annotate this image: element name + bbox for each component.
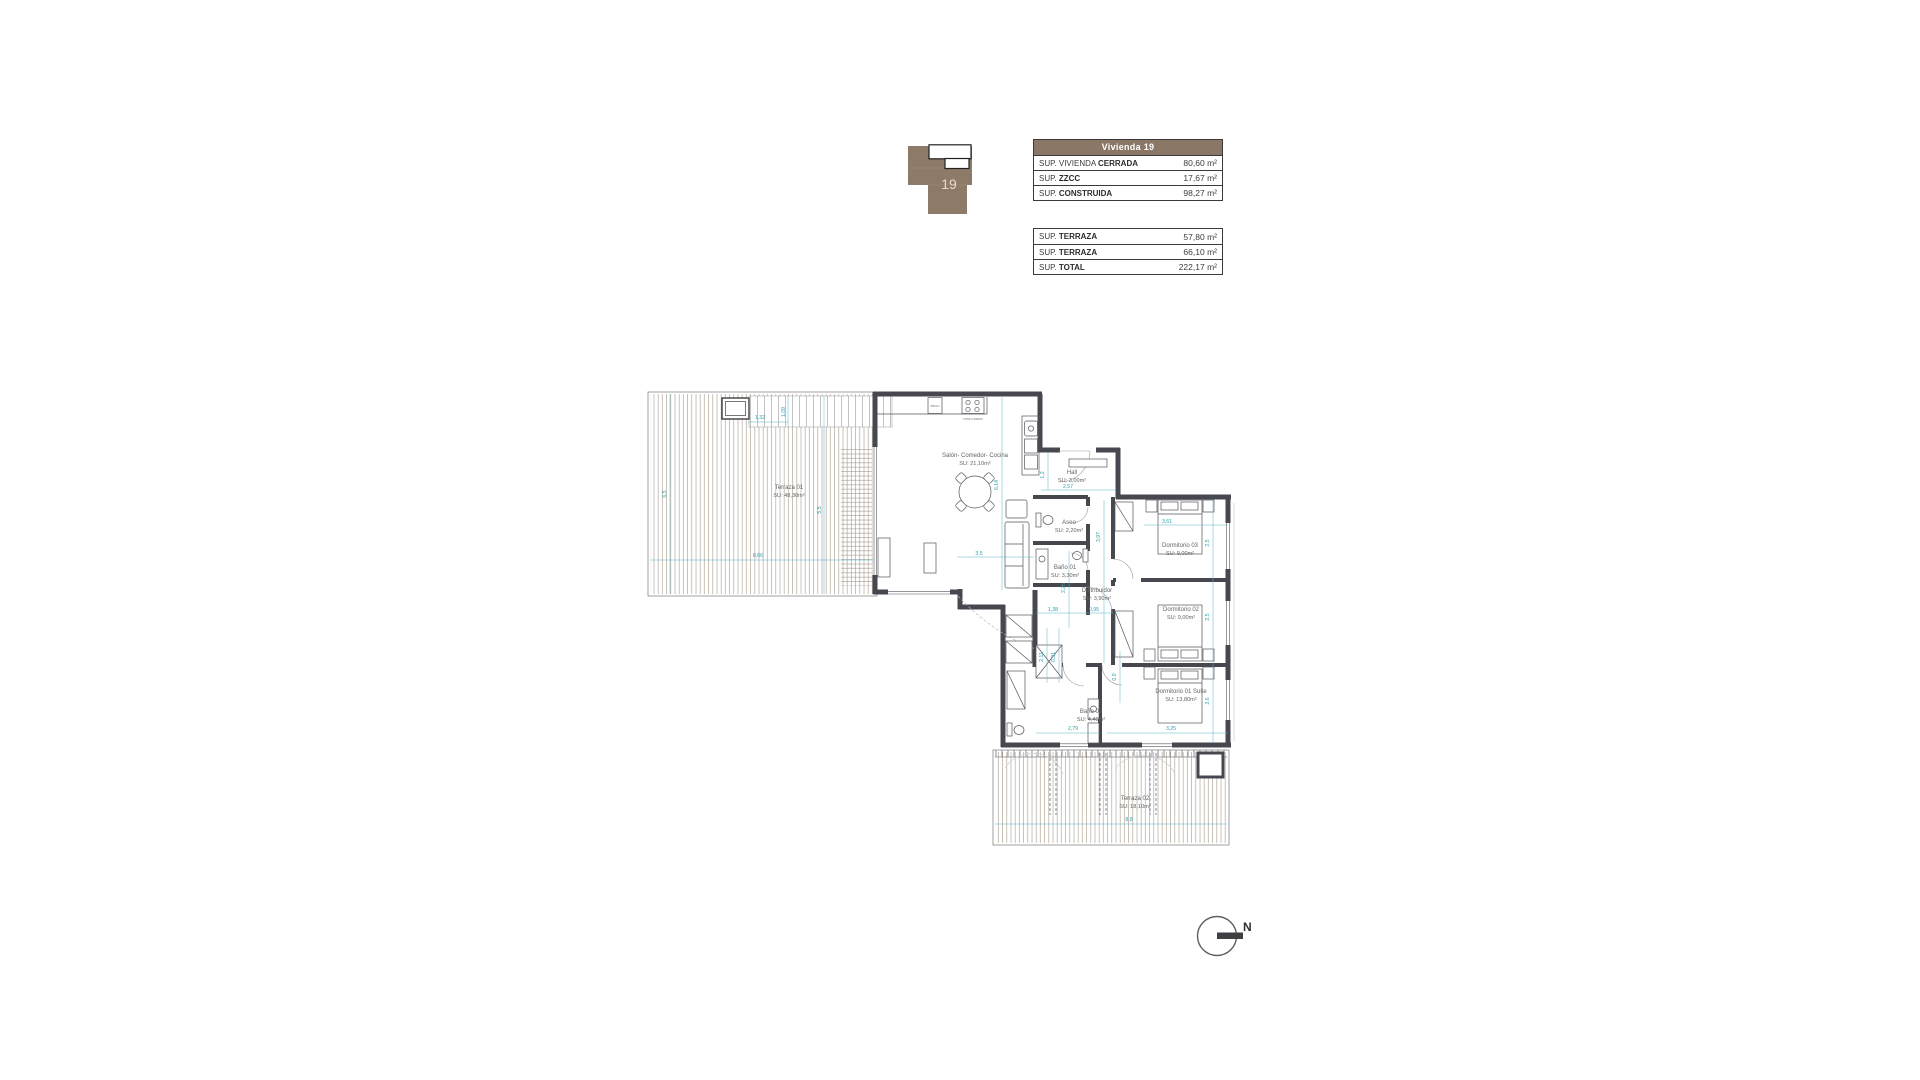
room-area-label: SU: 21,10m² — [959, 461, 991, 467]
room-label: Baño 02 — [1080, 709, 1103, 715]
dimension-label: 2,5 — [1205, 613, 1211, 620]
room-label: Baño 01 — [1054, 565, 1077, 571]
armchair — [1006, 500, 1027, 518]
shower — [1007, 671, 1025, 709]
room-label: Hall — [1067, 470, 1077, 476]
terrace-planter — [1198, 753, 1223, 777]
room-area-label: SU: 13,80m² — [1165, 697, 1197, 703]
room-label: Aseo — [1062, 520, 1076, 526]
key-plan-icon: 19 — [907, 144, 973, 214]
bed-suite — [1144, 667, 1214, 723]
room-area-label: SU: 9,00m² — [1166, 551, 1194, 557]
table-row: SUP. ZZCC 17,67 m² — [1034, 170, 1222, 185]
room-label: Dormitorio 03 — [1162, 543, 1199, 549]
row-value: 98,27 m² — [1183, 188, 1217, 198]
row-value: 80,60 m² — [1183, 158, 1217, 168]
room-area-label: SU: 9,00m² — [1167, 615, 1195, 621]
row-label: SUP. ZZCC — [1039, 174, 1080, 183]
room-label: Dormitorio 02 — [1163, 607, 1200, 613]
row-label: SUP. VIVIENDA CERRADA — [1039, 159, 1138, 168]
plan-sheet: 19 Vivienda 19 SUP. VIVIENDA CERRADA 80,… — [0, 0, 1920, 1080]
chair — [955, 500, 967, 512]
room-area-label: SU: 2,20m² — [1055, 528, 1083, 534]
room-label: Terraza 01 — [775, 485, 804, 491]
room-label: Distribuidor — [1082, 588, 1112, 594]
dimension-label: 3,25 — [1166, 726, 1176, 732]
dimension-label: 3,61 — [1162, 519, 1172, 525]
sink — [1025, 421, 1038, 436]
dimension-label: 6,5 — [662, 490, 668, 497]
dimension-label: 1,32 — [755, 415, 765, 421]
north-arrow: N — [1194, 910, 1258, 964]
dimension-label: 0,95 — [1089, 607, 1099, 613]
dimension-label: 1,38 — [1048, 607, 1058, 613]
floor-plan: FRIGO VITRO HORNO Terraza 01SU: 48,30m²S… — [645, 383, 1245, 858]
closet — [1115, 502, 1133, 531]
dimension-label: 5,5 — [817, 506, 823, 513]
key-plan-notch-1 — [929, 145, 971, 159]
table-row: SUP. TERRAZA 66,10 m² — [1034, 244, 1222, 259]
room-area-label: SU: 3,30m² — [1051, 573, 1079, 579]
compass-needle — [1217, 933, 1243, 940]
row-value: 222,17 m² — [1179, 262, 1217, 272]
room-area-label: SU: 48,30m² — [773, 493, 805, 499]
hob-label: VITRO HORNO — [963, 417, 984, 421]
row-label: SUP. TOTAL — [1039, 263, 1085, 272]
planter-box — [722, 398, 749, 419]
dimension-label: 8,66 — [753, 553, 763, 559]
row-value: 66,10 m² — [1183, 247, 1217, 257]
dimension-label: 2,79 — [1068, 726, 1078, 732]
dimension-label: 8,8 — [1125, 817, 1132, 823]
dimension-label: 1,2 — [1040, 471, 1046, 478]
dimension-label: 2,11 — [1039, 652, 1045, 662]
key-plan-notch-2 — [945, 159, 969, 169]
dimension-label: 6,14 — [994, 480, 1000, 490]
bed-dorm-02 — [1144, 605, 1214, 661]
row-value: 57,80 m² — [1183, 232, 1217, 242]
row-value: 17,67 m² — [1183, 173, 1217, 183]
dimension-label: 2,6 — [1205, 697, 1211, 704]
hall-console — [1069, 459, 1107, 467]
key-plan-unit-number: 19 — [941, 176, 957, 192]
terrace-02 — [993, 750, 1229, 845]
row-label: SUP. TERRAZA — [1039, 232, 1097, 241]
north-label: N — [1243, 920, 1252, 934]
table-row: SUP. TOTAL 222,17 m² — [1034, 259, 1222, 274]
table-row: SUP. VIVIENDA CERRADA 80,60 m² — [1034, 155, 1222, 170]
tv-cabinet — [878, 538, 890, 577]
room-label: Terraza 02 — [1121, 796, 1150, 802]
area-table-terraces: SUP. TERRAZA 57,80 m² SUP. TERRAZA 66,10… — [1033, 228, 1223, 275]
dimension-label: 0,91 — [1051, 652, 1057, 662]
dimension-label: 1,09 — [781, 407, 787, 417]
room-label: Dormitorio 01 Suite — [1155, 689, 1207, 695]
closet — [1006, 615, 1032, 637]
hob — [962, 398, 984, 414]
dimension-label: 0,9 — [1112, 673, 1118, 680]
row-label: SUP. CONSTRUIDA — [1039, 189, 1112, 198]
table-row: SUP. TERRAZA 57,80 m² — [1034, 229, 1222, 244]
dimension-label: 2,57 — [1063, 484, 1073, 490]
closet — [1006, 641, 1032, 663]
fridge-label: FRIGO — [931, 404, 941, 408]
area-table-header: Vivienda 19 — [1034, 140, 1222, 155]
chair — [955, 472, 967, 484]
dimension-label: 3,97 — [1096, 532, 1102, 542]
room-area-label: SU: 3,90m² — [1083, 596, 1111, 602]
room-label: Salón- Comedor- Cocina — [942, 453, 1009, 459]
dimension-label: 2,5 — [1205, 539, 1211, 546]
row-label: SUP. TERRAZA — [1039, 248, 1097, 257]
dimension-label: 2,26 — [1061, 583, 1067, 593]
dimension-label: 3,5 — [975, 551, 982, 557]
terrace-01 — [648, 392, 892, 596]
room-area-label: SU: 4,40m² — [1077, 717, 1105, 723]
area-table-main: Vivienda 19 SUP. VIVIENDA CERRADA 80,60 … — [1033, 139, 1223, 201]
sideboard — [924, 543, 936, 573]
table-row: SUP. CONSTRUIDA 98,27 m² — [1034, 185, 1222, 200]
chair — [983, 500, 995, 512]
closet — [1115, 611, 1133, 657]
room-area-label: SU: 18,10m² — [1119, 804, 1151, 810]
sofa — [1005, 522, 1029, 588]
